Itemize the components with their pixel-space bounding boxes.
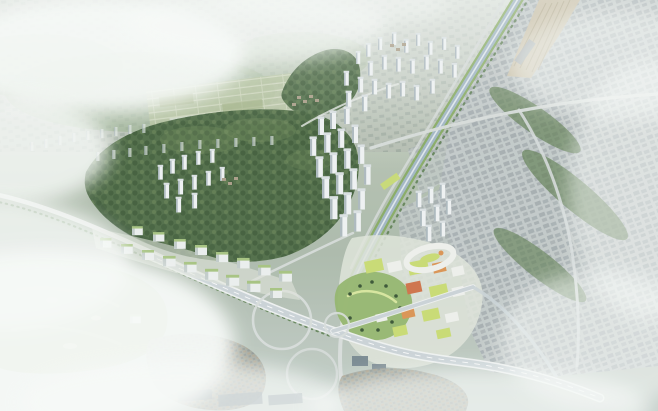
clouds (0, 0, 658, 411)
atmosphere-veil (0, 0, 658, 411)
aerial-masterplan-rendering (0, 0, 658, 411)
rendering-stage (0, 0, 658, 411)
